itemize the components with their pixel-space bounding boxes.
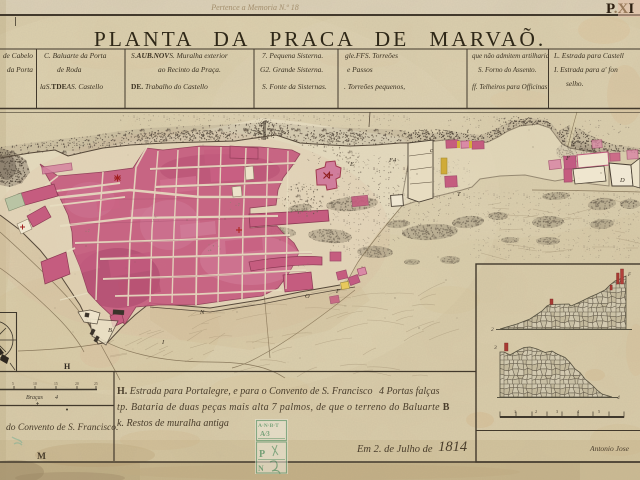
svg-text:5: 5 (12, 382, 14, 386)
svg-text:4: 4 (55, 394, 58, 401)
svg-text:4: 4 (617, 394, 620, 401)
svg-text:de Roda: de Roda (57, 65, 82, 74)
svg-text:t: t (467, 128, 469, 135)
svg-text:. Torreões pequenos,: . Torreões pequenos, (344, 82, 405, 91)
svg-text:G2. Grande Sisterna.: G2. Grande Sisterna. (260, 65, 323, 74)
svg-text:H. Estrada para Portalegre, e: H. Estrada para Portalegre, e para o Con… (117, 386, 440, 397)
svg-text:D: D (619, 177, 625, 184)
svg-text:3: 3 (493, 345, 497, 351)
svg-text:do Convento de S. Francisco.: do Convento de S. Francisco. (6, 423, 118, 433)
svg-text:E: E (349, 161, 354, 168)
svg-text:c: c (430, 147, 433, 154)
svg-text:F4: F4 (388, 157, 397, 164)
svg-text:Antonio Jose: Antonio Jose (589, 444, 630, 453)
svg-text:k. Restos de muralha antiga: k. Restos de muralha antiga (117, 418, 229, 429)
svg-text:DE. Trabalho do Castello: DE. Trabalho do Castello (131, 82, 208, 91)
svg-text:5: 5 (598, 409, 600, 414)
svg-text:ff. Telheiros para Officinas: ff. Telheiros para Officinas (472, 83, 548, 91)
svg-text:2: 2 (491, 327, 494, 333)
svg-text:N: N (199, 309, 205, 316)
svg-text:15: 15 (54, 382, 58, 386)
svg-text:e Passos: e Passos (347, 65, 373, 74)
svg-text:7. Pequena Sisterna.: 7. Pequena Sisterna. (262, 51, 323, 60)
svg-text:20: 20 (75, 382, 79, 386)
svg-text:2: 2 (535, 409, 537, 414)
svg-text:3: 3 (556, 409, 558, 414)
svg-text:S.AUB.NOVS. Muralha exterior: S.AUB.NOVS. Muralha exterior (131, 51, 228, 60)
svg-text:ao Recinto da Praça.: ao Recinto da Praça. (158, 65, 221, 74)
svg-text:A·N·B·T: A·N·B·T (258, 423, 279, 429)
svg-text:M: M (37, 452, 46, 462)
svg-text:T: T (457, 191, 461, 198)
svg-text:de Cabelo: de Cabelo (3, 51, 33, 60)
svg-text:S. Fonte da Sisternas.: S. Fonte da Sisternas. (262, 82, 327, 91)
svg-text:PLANTA DA PRACA DE MARVAÕ.: PLANTA DA PRACA DE MARVAÕ. (94, 27, 546, 51)
svg-text:que não admitem artilharia: que não admitem artilharia (472, 52, 550, 60)
svg-text:A⁄3: A⁄3 (260, 430, 270, 438)
svg-text:O: O (305, 293, 310, 300)
svg-text:S. Forno do Assento.: S. Forno do Assento. (478, 66, 537, 74)
svg-text:da Porta: da Porta (7, 65, 33, 74)
svg-text:N: N (258, 464, 264, 473)
svg-text:10: 10 (33, 382, 37, 386)
svg-text:I. Estrada para a' fon: I. Estrada para a' fon (553, 65, 618, 74)
svg-text:B: B (108, 327, 112, 334)
svg-text:selho.: selho. (566, 79, 584, 88)
svg-text:P: P (259, 449, 265, 460)
svg-text:gle.FFS. Torreões: gle.FFS. Torreões (345, 51, 398, 60)
svg-text:1: 1 (514, 409, 516, 414)
svg-text:H: H (64, 362, 71, 371)
svg-text:25: 25 (94, 382, 98, 386)
svg-text:Braças: Braças (26, 395, 44, 401)
svg-text:Pertence a Memoria N.º 18: Pertence a Memoria N.º 18 (210, 3, 299, 12)
svg-text:L. Estrada para Castell: L. Estrada para Castell (553, 51, 624, 60)
svg-text:tp. Bataria de duas peças mais: tp. Bataria de duas peças mais alta 7 pa… (117, 402, 450, 413)
svg-text:P.XI: P.XI (606, 1, 634, 17)
svg-text:C. Baluarte da Porta: C. Baluarte da Porta (44, 51, 107, 60)
svg-text:laS.TDEAS. Castello: laS.TDEAS. Castello (40, 82, 103, 91)
